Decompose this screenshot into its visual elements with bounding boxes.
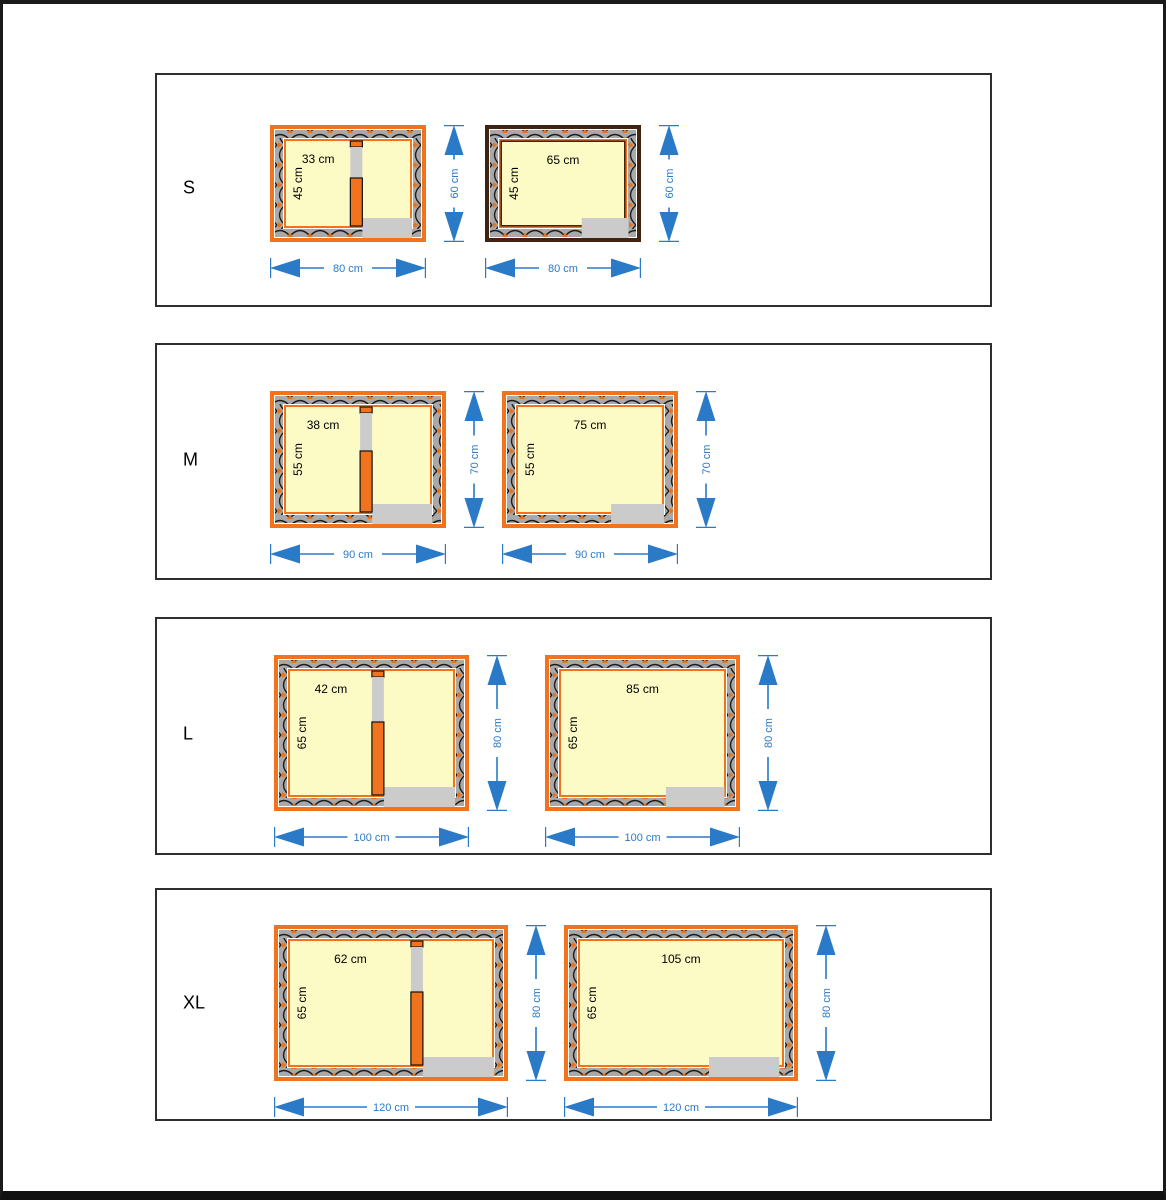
partition-upper [411,947,423,992]
depth-label: 65 cm [295,987,309,1020]
height-dim-label: 80 cm [492,718,504,748]
width-dim-arrow-right [439,828,469,847]
interior-width-label: 65 cm [547,153,580,167]
width-dim-label: 120 cm [663,1102,699,1114]
plan-open: 65 cm45 cm80 cm60 cm [485,125,693,290]
wall-hatch-left [490,138,498,229]
wall-hatch-top [490,130,636,138]
entrance-opening [362,218,412,238]
depth-label: 45 cm [291,167,305,200]
height-dim-arrow-down [465,498,484,528]
wall-hatch-right [495,938,503,1068]
partition-upper [360,413,372,451]
depth-label: 55 cm [523,443,537,476]
height-dim-arrow-up [817,925,836,955]
height-dim-arrow-down [817,1051,836,1081]
height-dim-arrow-up [445,125,464,155]
diagram-mount: 65 cm45 cm80 cm60 cm [485,125,693,295]
width-dim-label: 120 cm [373,1102,409,1114]
chamber-width-label: 33 cm [302,152,335,166]
width-dim-arrow-right [416,545,446,564]
interior-width-label: 75 cm [574,418,607,432]
size-specification-sheet: S 33 cm45 cm80 cm60 cm 65 cm45 cm80 cm60… [0,0,1166,1200]
wall-hatch-left [569,938,577,1068]
partition-cap [411,941,423,947]
height-dim-arrow-down [697,498,716,528]
interior-width-label: 105 cm [661,952,700,966]
partition-cap [372,671,384,677]
height-dim-label: 70 cm [469,445,481,475]
diagram-mount: 38 cm55 cm90 cm70 cm [270,391,498,581]
entrance-opening [611,504,664,524]
height-dim-label: 70 cm [701,445,713,475]
diagram-mount: 42 cm65 cm100 cm80 cm [274,655,521,864]
size-label: L [183,723,193,744]
width-dim-arrow-right [478,1098,508,1117]
depth-label: 65 cm [585,987,599,1020]
width-dim-arrow-left [545,828,575,847]
wall-hatch-top [279,930,503,938]
wall-hatch-top [507,396,673,404]
wall-hatch-left [275,404,283,515]
plan-open: 105 cm65 cm120 cm80 cm [564,925,850,1129]
entrance-opening [582,218,629,238]
panel-size-s: S 33 cm45 cm80 cm60 cm 65 cm45 cm80 cm60… [155,73,992,307]
wall-hatch-left [550,668,558,798]
height-dim-arrow-up [527,925,546,955]
height-dim-arrow-down [759,781,778,811]
entrance-opening [709,1057,779,1077]
height-dim-arrow-up [465,391,484,421]
height-dim-arrow-down [660,212,679,242]
partition-heater [372,722,384,795]
height-dim-arrow-down [488,781,507,811]
width-dim-arrow-left [270,545,300,564]
width-dim-label: 80 cm [548,263,578,275]
wall-hatch-top [569,930,793,938]
partition-cap [360,407,372,413]
width-dim-arrow-left [274,828,304,847]
width-dim-label: 90 cm [575,549,605,561]
chamber-width-label: 62 cm [334,952,367,966]
chamber-width-label: 42 cm [315,682,348,696]
entrance-opening [423,1057,494,1077]
width-dim-label: 100 cm [353,832,389,844]
interior-floor [290,941,492,1065]
height-dim-label: 80 cm [763,718,775,748]
depth-label: 65 cm [295,717,309,750]
wall-hatch-top [550,660,735,668]
wall-hatch-right [413,138,421,229]
partition-heater [360,451,372,512]
width-dim-arrow-right [648,545,678,564]
wall-hatch-right [785,938,793,1068]
height-dim-arrow-down [527,1051,546,1081]
wall-hatch-top [279,660,464,668]
height-dim-label: 60 cm [664,169,676,199]
height-dim-arrow-down [445,212,464,242]
width-dim-arrow-left [270,259,300,278]
diagram-mount: 105 cm65 cm120 cm80 cm [564,925,850,1134]
wall-hatch-right [433,404,441,515]
plan-open: 75 cm55 cm90 cm70 cm [502,391,730,576]
width-dim-arrow-right [611,259,641,278]
size-label: M [183,449,198,470]
plan-divided: 62 cm65 cm120 cm80 cm [274,925,560,1129]
size-label: XL [183,992,205,1013]
wall-hatch-left [507,404,515,515]
depth-label: 55 cm [291,443,305,476]
wall-hatch-right [665,404,673,515]
plan-divided: 42 cm65 cm100 cm80 cm [274,655,521,859]
entrance-opening [372,504,432,524]
height-dim-arrow-up [488,655,507,685]
wall-hatch-top [275,396,441,404]
plan-divided: 33 cm45 cm80 cm60 cm [270,125,478,290]
width-dim-label: 80 cm [333,263,363,275]
panel-size-l: L 42 cm65 cm100 cm80 cm 85 cm65 cm100 cm… [155,617,992,855]
wall-hatch-left [279,938,287,1068]
height-dim-arrow-up [759,655,778,685]
diagram-mount: 75 cm55 cm90 cm70 cm [502,391,730,581]
width-dim-arrow-right [396,259,426,278]
chamber-width-label: 38 cm [307,418,340,432]
panel-size-xl: XL 62 cm65 cm120 cm80 cm 105 cm65 cm120 … [155,888,992,1121]
width-dim-arrow-left [564,1098,594,1117]
entrance-opening [666,787,725,807]
height-dim-label: 80 cm [531,988,543,1018]
height-dim-arrow-up [697,391,716,421]
width-dim-arrow-right [768,1098,798,1117]
diagram-mount: 85 cm65 cm100 cm80 cm [545,655,792,864]
partition-heater [350,178,362,226]
diagram-mount: 33 cm45 cm80 cm60 cm [270,125,478,295]
diagram-mount: 62 cm65 cm120 cm80 cm [274,925,560,1134]
partition-upper [350,147,362,178]
depth-label: 45 cm [507,167,521,200]
partition-cap [350,141,362,147]
size-label: S [183,177,195,198]
wall-hatch-right [456,668,464,798]
wall-hatch-top [275,130,421,138]
plan-divided: 38 cm55 cm90 cm70 cm [270,391,498,576]
height-dim-label: 80 cm [821,988,833,1018]
height-dim-label: 60 cm [449,169,461,199]
wall-hatch-right [727,668,735,798]
width-dim-label: 100 cm [624,832,660,844]
wall-hatch-right [628,138,636,229]
panel-size-m: M 38 cm55 cm90 cm70 cm 75 cm55 cm90 cm70… [155,343,992,580]
width-dim-arrow-left [502,545,532,564]
interior-width-label: 85 cm [626,682,659,696]
partition-upper [372,677,384,722]
width-dim-arrow-left [274,1098,304,1117]
plan-open: 85 cm65 cm100 cm80 cm [545,655,792,859]
width-dim-arrow-left [485,259,515,278]
depth-label: 65 cm [566,717,580,750]
partition-heater [411,992,423,1065]
wall-hatch-left [279,668,287,798]
width-dim-label: 90 cm [343,549,373,561]
wall-hatch-left [275,138,283,229]
entrance-opening [384,787,455,807]
height-dim-arrow-up [660,125,679,155]
width-dim-arrow-right [710,828,740,847]
